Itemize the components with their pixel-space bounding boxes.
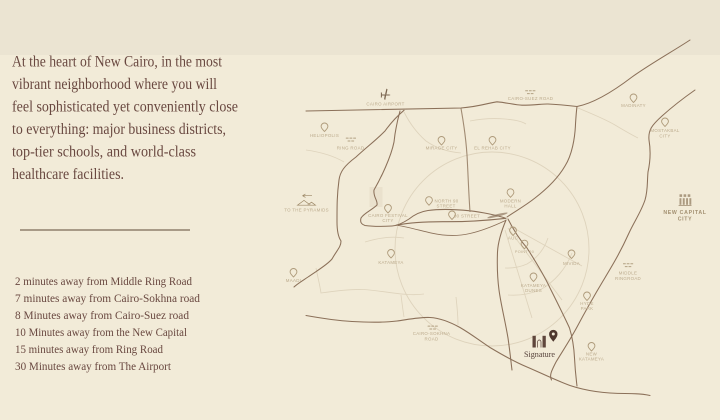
svg-text:CITY: CITY bbox=[678, 217, 693, 223]
svg-text:At the heart of New Cairo, in: At the heart of New Cairo, in the most bbox=[12, 54, 223, 71]
svg-text:MOSTAKBAL: MOSTAKBAL bbox=[650, 128, 679, 133]
svg-text:8 Minutes away from Cairo-Suez: 8 Minutes away from Cairo-Suez road bbox=[15, 310, 189, 322]
svg-text:30 Minutes away from The Airpo: 30 Minutes away from The Airport bbox=[15, 361, 172, 373]
svg-text:vibrant neighborhood where you: vibrant neighborhood where you will bbox=[12, 76, 217, 93]
svg-text:7 minutes away from Cairo-Sokh: 7 minutes away from Cairo-Sokhna road bbox=[15, 293, 200, 305]
svg-text:to everything: major business: to everything: major business districts, bbox=[12, 121, 226, 138]
svg-text:KATAMEYA: KATAMEYA bbox=[579, 357, 604, 362]
svg-text:15 minutes away from Ring Road: 15 minutes away from Ring Road bbox=[15, 344, 163, 356]
svg-text:CAIRO-SUEZ ROAD: CAIRO-SUEZ ROAD bbox=[508, 96, 553, 101]
svg-text:RING ROAD: RING ROAD bbox=[337, 146, 365, 151]
svg-text:healthcare facilities.: healthcare facilities. bbox=[12, 166, 124, 183]
svg-text:CAIRO-SOKHNA: CAIRO-SOKHNA bbox=[413, 331, 451, 336]
svg-text:90 STREET: 90 STREET bbox=[454, 214, 480, 219]
svg-text:HELIOPOLIS: HELIOPOLIS bbox=[310, 133, 339, 138]
svg-text:STREET: STREET bbox=[437, 203, 456, 208]
svg-text:KATAMEYA: KATAMEYA bbox=[378, 260, 403, 265]
svg-text:MADINATY: MADINATY bbox=[621, 103, 646, 108]
svg-text:feel sophisticated yet conveni: feel sophisticated yet conveniently clos… bbox=[12, 99, 238, 116]
svg-text:DUNES: DUNES bbox=[525, 288, 542, 293]
svg-text:AUC: AUC bbox=[508, 236, 518, 241]
svg-text:CITY: CITY bbox=[659, 134, 670, 139]
svg-text:POINT 90: POINT 90 bbox=[515, 250, 534, 254]
svg-text:MAADI: MAADI bbox=[286, 278, 301, 283]
svg-text:top-tier schools, and world-cl: top-tier schools, and world-class bbox=[12, 144, 196, 161]
svg-text:ROAD: ROAD bbox=[425, 337, 439, 342]
svg-text:PARK: PARK bbox=[581, 306, 594, 311]
svg-text:RINGROAD: RINGROAD bbox=[615, 276, 641, 281]
svg-text:Signature: Signature bbox=[524, 350, 555, 359]
svg-text:MIDDLE: MIDDLE bbox=[619, 271, 637, 276]
svg-text:TO THE PYRAMIDS: TO THE PYRAMIDS bbox=[284, 208, 329, 213]
svg-text:10 Minutes away from the New C: 10 Minutes away from the New Capital bbox=[15, 327, 187, 339]
svg-text:NEW CAPITAL: NEW CAPITAL bbox=[663, 210, 706, 216]
svg-text:CAIRO AIRPORT: CAIRO AIRPORT bbox=[366, 101, 404, 106]
svg-text:2 minutes away from Middle Rin: 2 minutes away from Middle Ring Road bbox=[15, 276, 192, 288]
svg-text:EL REHAB CITY: EL REHAB CITY bbox=[474, 146, 511, 151]
svg-text:HALL: HALL bbox=[504, 203, 516, 208]
svg-text:CITY: CITY bbox=[382, 218, 393, 223]
svg-text:MIVIDA: MIVIDA bbox=[563, 261, 580, 266]
svg-text:MIRAGE CITY: MIRAGE CITY bbox=[426, 146, 458, 151]
